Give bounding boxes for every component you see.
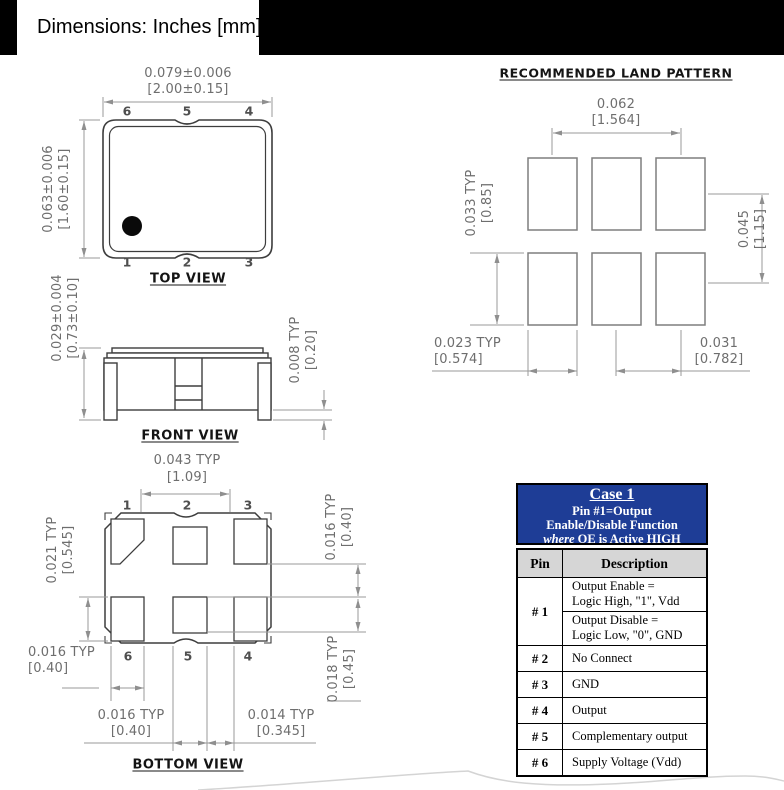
case-title: Case 1 (518, 486, 706, 504)
bottom-view-pin-2: 2 (183, 498, 192, 513)
case-line-3: where OE is Active HIGH (518, 532, 706, 546)
top-view-outline (103, 120, 272, 258)
bottom-view-pad-gap-dim: 0.014 TYP [0.345] (248, 708, 315, 740)
pad-3 (234, 519, 267, 564)
front-view-standoff-dim: 0.008 TYP [0.20] (288, 317, 320, 384)
front-view-label: FRONT VIEW (141, 429, 238, 444)
page-title: Dimensions: Inches [mm] (17, 16, 262, 39)
table-row-pin5: # 5 Complementary output (518, 723, 706, 749)
front-view-outline (104, 348, 271, 420)
bottom-view-row-gap-dim: 0.016 TYP [0.40] (324, 494, 356, 561)
dimensions-units-label-box: Dimensions: Inches [mm] (17, 0, 259, 55)
pad-6 (111, 597, 144, 641)
bottom-view-pitch-dim-in: 0.043 TYP (154, 453, 221, 469)
table-row-pin4: # 4 Output (518, 697, 706, 723)
table-row-pin1: # 1 Output Enable = Logic High, "1", Vdd… (518, 577, 706, 645)
table-row-pin2: # 2 No Connect (518, 645, 706, 671)
bottom-view-pin-5: 5 (184, 649, 193, 664)
pin-description-table: Pin Description # 1 Output Enable = Logi… (516, 548, 708, 777)
pad-2 (173, 527, 207, 564)
datasheet-page: Dimensions: Inches [mm] 0.079±0.006 [2.0… (0, 0, 784, 790)
top-view-height-dim: 0.063±0.006 [1.60±0.15] (41, 145, 73, 233)
bottom-view-pitch-dim-mm: [1.09] (167, 470, 207, 486)
case-header-box: Case 1 Pin #1=Output Enable/Disable Func… (516, 483, 708, 545)
pad-5 (173, 597, 207, 633)
table-header-row: Pin Description (518, 550, 706, 577)
bottom-view-center-pad-width-dim: 0.016 TYP [0.40] (98, 708, 165, 740)
bottom-view-label: BOTTOM VIEW (132, 758, 243, 773)
land-pattern-pad-height-dim: 0.033 TYP [0.85] (464, 170, 496, 237)
table-row-pin3: # 3 GND (518, 671, 706, 697)
top-view-pin-6: 6 (123, 104, 132, 119)
pin1-disable-desc: Output Disable = Logic Low, "0", GND (563, 611, 706, 645)
top-view-pin-4: 4 (245, 104, 254, 119)
land-pattern-row-pitch-dim: 0.045 [1.15] (737, 209, 769, 249)
pin1-indicator-dot (122, 216, 142, 236)
pad-4 (234, 597, 267, 641)
land-pattern-pads (528, 158, 705, 325)
bottom-view-corner-pad-width-dim: 0.016 TYP [0.40] (28, 645, 95, 677)
top-view-pin-2: 2 (183, 255, 192, 270)
bottom-view-pin-3: 3 (244, 498, 253, 513)
top-view-pin-1: 1 (123, 255, 132, 270)
pin1-enable-desc: Output Enable = Logic High, "1", Vdd (563, 578, 706, 611)
land-pattern-title: RECOMMENDED LAND PATTERN (500, 66, 733, 81)
table-row-pin6: # 6 Supply Voltage (Vdd) (518, 749, 706, 775)
land-pattern-span-dim-mm: [1.564] (592, 113, 641, 129)
case-line-2: Enable/Disable Function (518, 518, 706, 532)
land-pattern-col-pitch-dim: 0.031 [0.782] (695, 336, 744, 368)
bottom-view-pin-4: 4 (244, 649, 253, 664)
bottom-view-pin-6: 6 (124, 649, 133, 664)
description-column-header: Description (563, 550, 706, 577)
bottom-view-corner-pad-height-dim: 0.021 TYP [0.545] (45, 517, 77, 584)
top-view-width-dim-mm: [2.00±0.15] (147, 82, 228, 98)
land-pattern-span-dim-in: 0.062 (597, 97, 635, 113)
top-view-width-dim-in: 0.079±0.006 (144, 66, 232, 82)
case-line-1: Pin #1=Output (518, 504, 706, 518)
pin-column-header: Pin (518, 550, 563, 577)
top-view-label: TOP VIEW (150, 272, 226, 287)
top-view-pin-5: 5 (183, 104, 192, 119)
front-view-height-dim: 0.029±0.004 [0.73±0.10] (50, 274, 82, 362)
bottom-view-center-pad-height-dim: 0.018 TYP [0.45] (326, 636, 358, 703)
land-pattern-pad-width-dim: 0.023 TYP [0.574] (434, 336, 501, 368)
bottom-view-pin-1: 1 (123, 498, 132, 513)
top-view-pin-3: 3 (245, 255, 254, 270)
